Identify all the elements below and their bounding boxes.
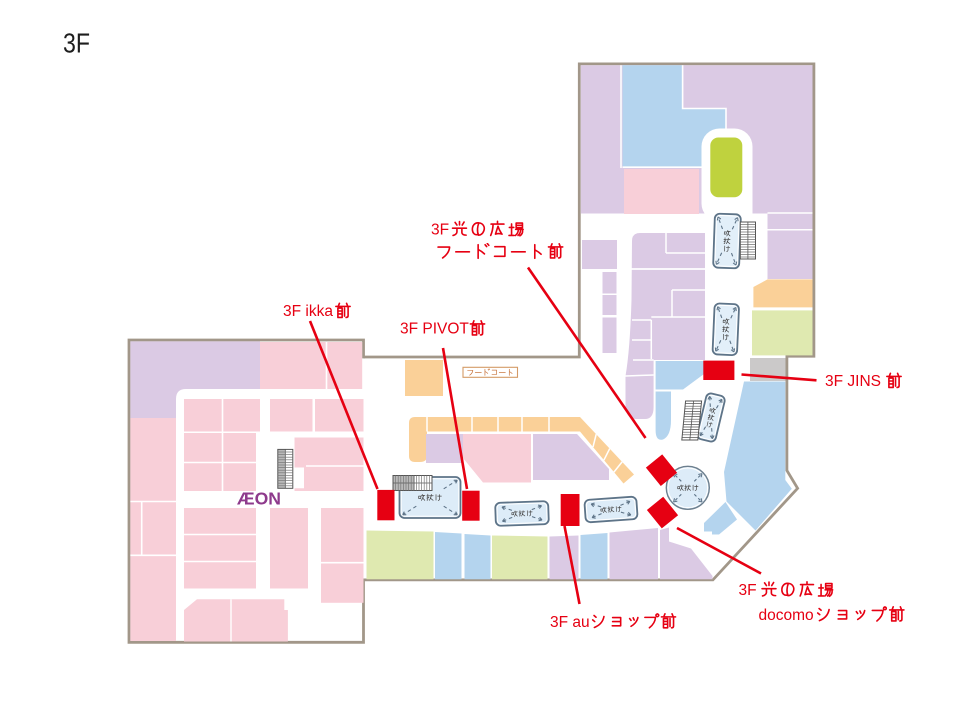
svg-text:3F: 3F	[63, 28, 90, 59]
svg-text:3F au: 3F au	[550, 614, 590, 631]
svg-text:3F JINS: 3F JINS	[825, 373, 881, 390]
svg-text:3F PIVOT: 3F PIVOT	[400, 321, 469, 338]
svg-text:3F: 3F	[431, 222, 449, 239]
svg-text:3F: 3F	[739, 582, 757, 599]
svg-text:3F ikka: 3F ikka	[283, 303, 333, 320]
svg-text:ÆON: ÆON	[237, 489, 281, 509]
svg-text:docomo: docomo	[759, 607, 814, 624]
